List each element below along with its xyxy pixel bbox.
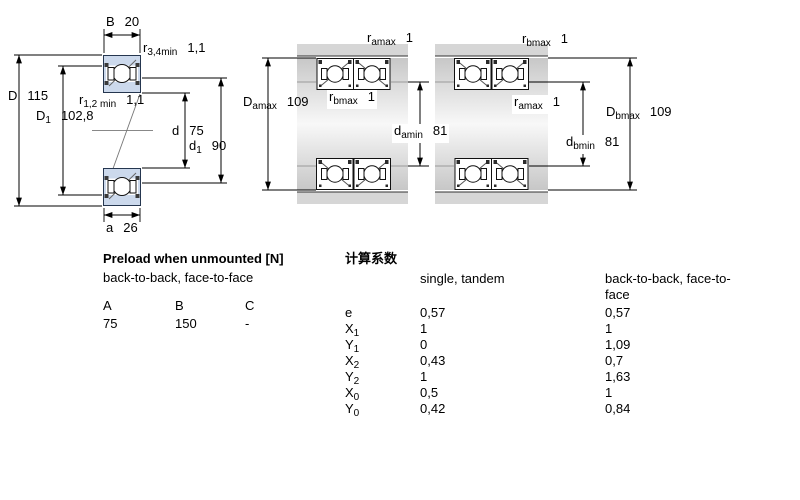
factor-value-paired: 1,09 <box>605 337 745 353</box>
preload-value-C: - <box>245 316 285 332</box>
preload-col-A: A <box>103 298 175 314</box>
factors-table-body: e0,570,57 X111 Y101,09 X20,430,7 Y211,63… <box>345 305 745 417</box>
factors-col-back-to-back: back-to-back, face-to-face <box>605 271 745 303</box>
dim-label-ramax-2: ramax1 <box>512 95 562 114</box>
factor-row: X00,51 <box>345 385 745 401</box>
factor-row: Y00,420,84 <box>345 401 745 417</box>
factors-col-single-tandem: single, tandem <box>420 271 605 303</box>
factor-value-single: 0,43 <box>420 353 605 369</box>
dim-label-rbmax: rbmax1 <box>327 90 377 109</box>
preload-value-B: 150 <box>175 316 245 332</box>
dim-label-ramax: ramax1 <box>367 31 413 50</box>
dim-label-rbmax-2: rbmax1 <box>522 32 568 51</box>
preload-col-C: C <box>245 298 285 314</box>
dim-label-Dbmax: Dbmax109 <box>606 105 672 124</box>
factor-value-paired: 1,63 <box>605 369 745 385</box>
factor-row: Y101,09 <box>345 337 745 353</box>
bearing-spec-page: B20 r3,4min1,1 r1,2 min1,1 D115 D1102,8 … <box>0 0 800 500</box>
preload-col-B: B <box>175 298 245 314</box>
factor-row: X111 <box>345 321 745 337</box>
factor-row: e0,570,57 <box>345 305 745 321</box>
factor-value-paired: 0,57 <box>605 305 745 321</box>
dim-label-Damax: Damax109 <box>243 95 309 114</box>
factor-value-paired: 1 <box>605 385 745 401</box>
dim-label-r34: r3,4min1,1 <box>143 41 205 60</box>
dim-label-dbmin: dbmin81 <box>564 135 621 154</box>
dim-label-B: B20 <box>106 15 139 34</box>
dim-label-a: a26 <box>106 221 138 240</box>
factor-value-single: 0,42 <box>420 401 605 417</box>
factor-row: X20,430,7 <box>345 353 745 369</box>
factor-value-single: 0,57 <box>420 305 605 321</box>
dim-label-d1: d190 <box>189 139 226 158</box>
factors-table-title: 计算系数 <box>345 251 745 267</box>
calculation-factors-table: 计算系数 single, tandem back-to-back, face-t… <box>345 251 745 417</box>
factor-value-single: 1 <box>420 369 605 385</box>
factor-value-paired: 0,7 <box>605 353 745 369</box>
factor-row: Y211,63 <box>345 369 745 385</box>
dim-label-D: D115 <box>8 89 48 108</box>
dim-label-damin: damin81 <box>392 124 449 143</box>
preload-value-A: 75 <box>103 316 175 332</box>
factor-value-single: 0,5 <box>420 385 605 401</box>
mounting-figure-b <box>435 44 637 204</box>
factor-value-single: 0 <box>420 337 605 353</box>
dim-label-D1: D1102,8 <box>36 109 94 128</box>
factor-value-paired: 1 <box>605 321 745 337</box>
factors-table-header-row: single, tandem back-to-back, face-to-fac… <box>345 271 745 303</box>
factor-value-paired: 0,84 <box>605 401 745 417</box>
factor-value-single: 1 <box>420 321 605 337</box>
factor-symbol: Y0 <box>345 401 420 422</box>
